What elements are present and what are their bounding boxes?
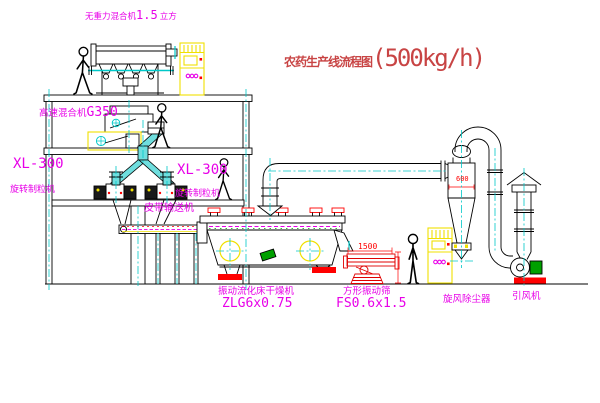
granulator-left-model-label: XL-300 — [13, 157, 64, 171]
control-cabinet-ground — [428, 228, 452, 283]
exhaust-duct-drawing — [258, 161, 452, 216]
induced-draft-fan-drawing — [511, 258, 547, 284]
granulator-left-name-label: 旋转制粒机 — [10, 186, 55, 195]
granulator-right-model-label: XL-300 — [177, 163, 228, 177]
fan-label: 引风机 — [512, 292, 541, 302]
gravity-mixer-size: 1.5 — [136, 9, 158, 21]
gravity-mixer-drawing — [88, 44, 177, 95]
diagram-title: 农药生产线流程图 (500kg/h) — [284, 46, 484, 70]
vibrating-screen-drawing — [334, 230, 401, 284]
cyclone-label: 旋风除尘器 — [443, 295, 491, 305]
control-cabinet-top — [180, 43, 204, 95]
screen-length-dimension: 1500 — [358, 243, 377, 251]
granulator-right-name-label: 旋转制粒机 — [175, 190, 220, 199]
high-speed-mixer-name: 高速混合机 — [39, 109, 87, 119]
belt-conveyor-label: 皮带输送机 — [144, 204, 194, 214]
process-flow-diagram: 农药生产线流程图 (500kg/h) 无重力混合机 1.5 立方 高速混合机 G… — [0, 0, 600, 403]
dryer-model-label: ZLG6x0.75 — [222, 297, 292, 310]
gravity-mixer-name: 无重力混合机 — [85, 13, 136, 22]
fluid-bed-dryer-drawing — [197, 208, 345, 280]
cyclone-diameter-dimension: 600 — [456, 176, 469, 183]
high-speed-mixer-model: G350 — [87, 106, 118, 119]
gravity-mixer-label: 无重力混合机 1.5 立方 — [85, 9, 177, 22]
granulator-left-drawing — [94, 172, 136, 224]
high-speed-mixer-label: 高速混合机 G350 — [39, 106, 118, 119]
diagram-title-capacity: (500kg/h) — [372, 46, 484, 70]
gravity-mixer-unit: 立方 — [160, 13, 177, 22]
screen-model-label: FS0.6x1.5 — [336, 297, 406, 310]
worker-ground-floor — [408, 234, 418, 283]
diagram-title-text: 农药生产线流程图 — [284, 56, 372, 68]
